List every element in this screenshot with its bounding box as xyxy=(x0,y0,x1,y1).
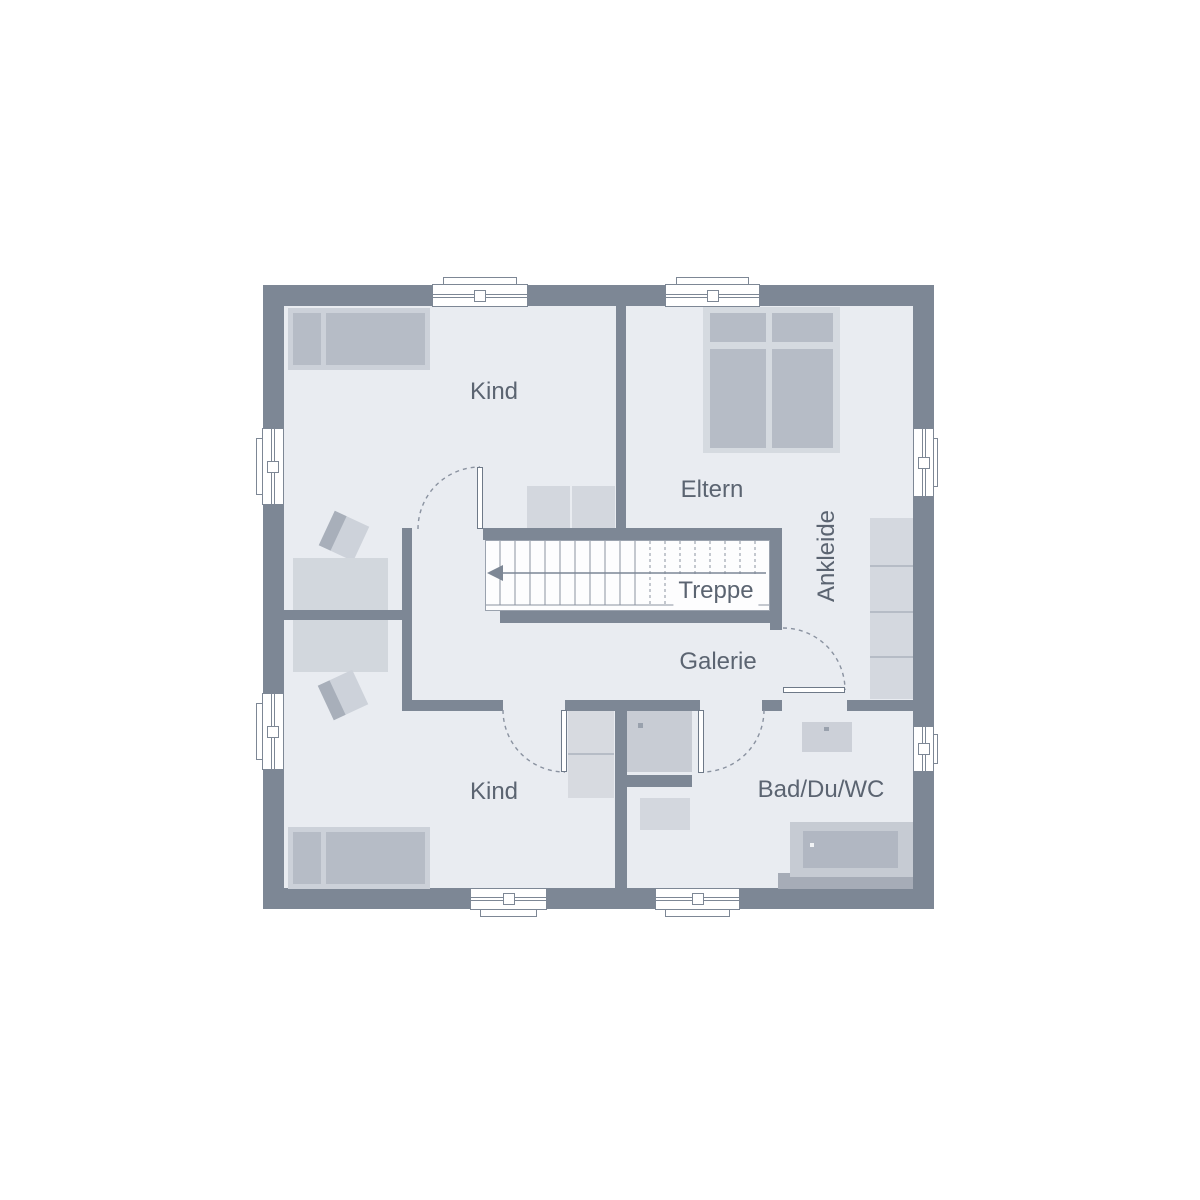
bed-mattress xyxy=(710,349,766,448)
room-label-galerie: Galerie xyxy=(679,648,756,676)
wardrobe-divider xyxy=(870,656,913,658)
wc xyxy=(640,798,690,830)
closet xyxy=(568,709,614,798)
double-bed xyxy=(703,307,840,453)
room-label-eltern: Eltern xyxy=(681,476,744,504)
window-handle xyxy=(267,461,279,473)
window-handle xyxy=(474,290,486,302)
bed-pillow xyxy=(710,313,766,342)
window-handle xyxy=(918,743,930,755)
window-handle xyxy=(503,893,515,905)
closet-divider xyxy=(568,753,614,755)
desk xyxy=(293,620,388,672)
bed xyxy=(288,827,430,889)
wall-outer-bottom xyxy=(263,888,934,909)
wall-wc-stub xyxy=(627,775,692,787)
wall-stair-bottom xyxy=(500,611,782,623)
bathtub-basin xyxy=(803,831,898,868)
desk xyxy=(293,558,388,610)
bed-pillow xyxy=(293,313,321,365)
window-sill xyxy=(665,909,730,917)
wall-stair-top xyxy=(483,528,782,540)
room-label-kind-bottom: Kind xyxy=(470,778,518,806)
wardrobe xyxy=(527,486,570,530)
wall-galerie-3 xyxy=(762,700,782,711)
wall-bad-left xyxy=(615,711,627,888)
room-label-kind-top: Kind xyxy=(470,378,518,406)
washbasin-tap xyxy=(824,727,829,731)
window-symbol xyxy=(470,888,547,910)
window-symbol xyxy=(262,693,284,770)
bed-pillow xyxy=(772,313,833,342)
wall-galerie-2 xyxy=(565,700,700,711)
bathtub xyxy=(790,822,913,877)
wall-kind-divider xyxy=(284,610,412,620)
bed-mattress xyxy=(326,832,425,884)
window-symbol xyxy=(432,284,528,307)
window-symbol xyxy=(262,428,284,505)
wall-galerie-4 xyxy=(847,700,913,711)
wall-outer-top xyxy=(263,285,934,306)
floor-plan: Kind Eltern Ankleide Treppe Galerie Kind… xyxy=(0,0,1200,1200)
wall-outer-left xyxy=(263,285,284,909)
window-handle xyxy=(692,893,704,905)
window-handle xyxy=(707,290,719,302)
wall-kind-eltern xyxy=(616,306,626,528)
bed-mattress xyxy=(326,313,425,365)
window-handle xyxy=(267,726,279,738)
wardrobe xyxy=(572,486,615,530)
window-symbol xyxy=(913,428,934,497)
wardrobe xyxy=(870,518,913,699)
window-symbol xyxy=(665,284,760,307)
window-symbol xyxy=(655,888,740,910)
bathtub-drain xyxy=(810,843,814,847)
wardrobe-divider xyxy=(870,611,913,613)
window-sill xyxy=(480,909,537,917)
room-label-treppe: Treppe xyxy=(673,576,758,606)
room-label-bad: Bad/Du/WC xyxy=(758,776,885,804)
bed xyxy=(288,308,430,370)
wardrobe-divider xyxy=(870,565,913,567)
shower xyxy=(627,710,692,772)
wall-galerie-1 xyxy=(402,700,503,711)
bed-mattress xyxy=(772,349,833,448)
room-label-ankleide: Ankleide xyxy=(813,510,841,602)
window-handle xyxy=(918,457,930,469)
wall-outer-right xyxy=(913,285,934,909)
washbasin xyxy=(802,722,852,752)
shower-drain xyxy=(638,723,643,728)
window-symbol xyxy=(913,726,934,772)
bed-pillow xyxy=(293,832,321,884)
